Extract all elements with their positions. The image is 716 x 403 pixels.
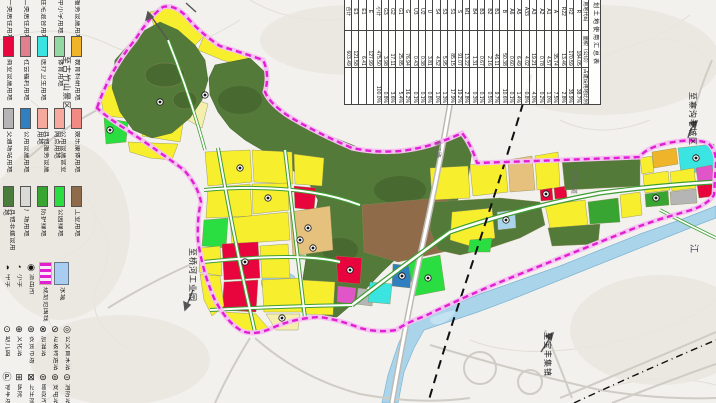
cell-code: E <box>366 0 373 30</box>
cell-code: R22 <box>559 0 566 30</box>
table-row: 非建设用地 E 127.99 <box>366 0 373 105</box>
legend-item: 娱乐康体用地 <box>70 108 83 177</box>
cell-percent <box>366 67 373 104</box>
cell-code: S4 <box>433 0 440 30</box>
legend-row-facilities-2: Ⓟ 停车场 ⊞ 医院 ⊠ 卫生院 ⊜ 邮政所 ⊚ 变电站 ⊝ 消防站 <box>2 372 72 403</box>
cell-percent: 0.8% <box>381 67 388 104</box>
cell-area: 50.38 <box>500 30 507 67</box>
water-swatch <box>54 262 69 285</box>
legend-swatch <box>71 36 82 57</box>
cell-area: 25.85 <box>396 30 403 67</box>
table-row: 商业服务业设施用地 B 50.38 10.6% <box>500 0 507 105</box>
boundary-swatch <box>39 262 52 285</box>
cell-area: 4.02 <box>522 30 529 67</box>
legend-item: 广场用地 <box>19 186 32 255</box>
cell-area: 3.81 <box>426 30 433 67</box>
cell-percent: 1.4% <box>514 67 521 104</box>
cell-area: 13.22 <box>463 30 470 67</box>
cell-percent: 4.0% <box>529 67 536 104</box>
legend-label: 农贸市场 <box>28 336 35 364</box>
parcels-cluster <box>640 144 716 207</box>
legend-label: 医疗卫生用地 <box>39 59 46 101</box>
cell-area: 1.31 <box>470 30 477 67</box>
table-row: E1 6.41 <box>359 0 366 105</box>
cell-code: B <box>500 0 507 30</box>
legend-water: 水域 <box>54 262 69 322</box>
legend-label: 公用设施用地 <box>22 131 29 173</box>
cell-area: 0.78 <box>537 30 544 67</box>
facility-icon: ⊞ <box>15 372 23 382</box>
legend-label: 水域 <box>58 287 65 301</box>
legend-label: 服务设施用地 <box>73 0 80 41</box>
table-row: A33 4.02 0.8% <box>522 0 529 105</box>
cell-area: 17.11 <box>389 30 396 67</box>
legend-swatch <box>37 36 48 57</box>
legend-item: 中小学用地 <box>53 0 66 41</box>
cell-code: E1 <box>359 0 366 30</box>
cell-code: R <box>574 0 581 30</box>
legend-label: 小学 <box>16 274 23 288</box>
legend-facility: ◉ 派出所 <box>26 262 36 322</box>
legend-facility: ⊙ 幼儿园 <box>2 324 12 371</box>
cell-percent: 0.1% <box>477 67 484 104</box>
table-row: B4 1.31 0.3% <box>470 0 477 105</box>
legend-item: 医疗卫生用地 <box>36 36 49 101</box>
cell-percent: 0.5% <box>485 67 492 104</box>
facility-icon: ⊕ <box>15 324 23 334</box>
cell-percent: 38.7% <box>574 67 581 104</box>
table-title: 规划土地使用汇总表 <box>589 0 601 105</box>
legend-item: 防护绿地 <box>36 186 49 255</box>
legend-label: 住宅混合用地 <box>39 0 46 41</box>
legend-label: 中学 <box>4 274 11 288</box>
legend-facility: ⊠ 卫生院 <box>26 372 36 403</box>
legend-label: 娱乐康体用地 <box>73 131 80 173</box>
cell-code: B2 <box>485 0 492 30</box>
legend-facility: ⊘ 垃圾转运站 <box>50 324 60 371</box>
cell-percent: 0.8% <box>426 67 433 104</box>
legend-item: 其他服务设施用地 <box>36 108 49 177</box>
cell-code: S <box>455 0 462 30</box>
legend-facility: ⊕ 文化站 <box>14 324 24 371</box>
legend-swatch <box>54 36 65 57</box>
legend-label: 邮政所 <box>40 384 47 403</box>
cell-percent: 1.0% <box>544 67 551 104</box>
landuse-summary-table: 规划土地使用汇总表 用地类别 用地代码 面积（公顷） 占建设用地比例（%） 居住… <box>344 0 601 105</box>
legend-swatch <box>54 186 65 207</box>
cell-code: R2 <box>566 0 573 30</box>
facility-icon: ⊘ <box>51 324 59 334</box>
cell-code: 小计 <box>374 0 381 30</box>
legend-swatch <box>37 108 48 129</box>
table-row: 总用地 合计 603.49 <box>344 0 351 105</box>
table-row: 绿地与广场用地 G 76.94 16.2% <box>403 0 410 105</box>
cell-area: 46.11 <box>492 30 499 67</box>
facility-icon: ◉ <box>27 262 35 272</box>
cell-code: U <box>426 0 433 30</box>
legend-swatch <box>20 36 31 57</box>
cell-area: 85.15 <box>448 30 455 67</box>
facility-icon: Ⓟ <box>2 372 11 382</box>
cell-area: 91.07 <box>455 30 462 67</box>
legend-item: 公用设施用地 <box>19 108 32 177</box>
legend-item: 其他非建设用地 <box>2 186 15 255</box>
legend-item: 一类居住用地 <box>2 0 15 41</box>
table-row: 公用设施用地 U 3.81 0.8% <box>426 0 433 105</box>
facility-icon: ⊙ <box>3 324 11 334</box>
facility-icon: ◑ <box>4 262 9 272</box>
cell-code: G3 <box>381 0 388 30</box>
legend-label: 防护绿地 <box>39 209 46 237</box>
cell-area: 6.49 <box>514 30 521 67</box>
table-row: U2 0.38 0.1% <box>418 0 425 105</box>
table-row: G2 17.11 3.6% <box>389 0 396 105</box>
legend-label: 加油站 <box>40 336 47 357</box>
legend-label: 医院 <box>16 384 23 398</box>
cell-area: 121.58 <box>352 30 359 67</box>
facility-icon: ⊗ <box>39 324 47 334</box>
legend-facility: ◑ 中学 <box>2 262 12 322</box>
facility-icon: ◎ <box>63 324 71 334</box>
cell-code: M1 <box>463 0 470 30</box>
legend-facility: ⊞ 医院 <box>14 372 24 403</box>
table-row: A3 19.21 4.0% <box>529 0 536 105</box>
cell-code: G <box>403 0 410 30</box>
legend-label: 交通场站用地 <box>5 131 12 173</box>
legend-facility: ⊛ 农贸市场 <box>26 324 36 371</box>
legend-swatch <box>37 186 48 207</box>
cell-percent: 7.5% <box>551 67 558 104</box>
legend-label: 停车场 <box>4 384 11 403</box>
legend-boundary: 规划范围线 <box>38 262 52 322</box>
legend-facility: ⊗ 加油站 <box>38 324 48 371</box>
legend-label: 卫生院 <box>28 384 35 403</box>
legend-label: 公用设施营业网点用地 <box>53 131 66 177</box>
cell-percent <box>344 67 351 104</box>
cell-percent: 1.3% <box>440 67 447 104</box>
legend-facility: ⊝ 消防站 <box>62 372 72 403</box>
cell-area: 603.49 <box>344 30 351 67</box>
cell-percent: 5.4% <box>396 67 403 104</box>
cell-area: 0.67 <box>477 30 484 67</box>
table-row: G1 25.85 5.4% <box>396 0 403 105</box>
legend-item: 教育科研用地 <box>70 36 83 101</box>
legend-facility: ⊚ 变电站 <box>50 372 60 403</box>
col-header: 用地代码 <box>581 0 588 30</box>
table-row: 道路与交通设施用地 S 91.07 19.2% <box>455 0 462 105</box>
cell-percent: 0.2% <box>537 67 544 104</box>
legend-label: 公园绿地 <box>56 209 63 237</box>
cell-area: 0.60 <box>507 30 514 67</box>
cell-code: S1 <box>448 0 455 30</box>
cell-code: U3 <box>411 0 418 30</box>
cell-code: B4 <box>470 0 477 30</box>
cell-percent: 0.3% <box>470 67 477 104</box>
legend-row-special: ◑ 中学 ◔ 小学 ◉ 派出所 规划范围线 水域 <box>2 262 69 322</box>
legend-swatch <box>54 108 65 129</box>
cell-percent <box>359 67 366 104</box>
legend-item: 交通场站用地 <box>2 108 15 177</box>
cell-area: 4.57 <box>544 30 551 67</box>
table-row: A5 6.49 1.4% <box>514 0 521 105</box>
cell-area: 3.98 <box>381 30 388 67</box>
cell-percent: 1.0% <box>433 67 440 104</box>
cell-percent: 9.7% <box>492 67 499 104</box>
legend: 一类居住用地 二类居住用地 住宅混合用地 中小学用地 服务设施用地 商业设施用地… <box>2 0 88 403</box>
legend-item: 服务设施用地 <box>70 0 83 41</box>
facility-icon: ⊜ <box>39 372 47 382</box>
legend-facility: ◎ 公交首末站 <box>62 324 72 371</box>
planning-map-sheet: 至古竹山景区至桥河工业园至寨沟老城区至宝丰集镇迎宾大道滨江路江 一类居住用地 二… <box>0 0 716 403</box>
legend-label: 文化站 <box>16 336 23 357</box>
table-row: B1 46.11 9.7% <box>492 0 499 105</box>
table-row: 工业用地 M1 13.22 2.8% <box>463 0 470 105</box>
legend-item: 二类居住用地 <box>19 0 32 41</box>
cell-code: A3 <box>529 0 536 30</box>
legend-facility: Ⓟ 停车场 <box>2 372 12 403</box>
legend-item: 社会福利用地 <box>19 36 32 101</box>
legend-facility: ⊜ 邮政所 <box>38 372 48 403</box>
legend-label: 工业用地 <box>73 209 80 237</box>
table-row: 建设用地 小计 475.50 100.0% <box>374 0 381 105</box>
cell-area: 19.21 <box>529 30 536 67</box>
cell-code: S3 <box>440 0 447 30</box>
legend-row-green: 其他非建设用地 广场用地 防护绿地 公园绿地 工业用地 <box>2 186 83 255</box>
table-row: A1 4.57 1.0% <box>544 0 551 105</box>
cell-percent: 10.6% <box>500 67 507 104</box>
legend-swatch <box>71 108 82 129</box>
legend-facility: ◔ 小学 <box>14 262 24 322</box>
facility-icon: ◔ <box>16 262 21 272</box>
table-header-row: 用地类别 用地代码 面积（公顷） 占建设用地比例（%） <box>581 0 588 105</box>
facility-icon: ⊝ <box>63 372 71 382</box>
cell-percent: 3.6% <box>389 67 396 104</box>
cell-area: 5.95 <box>440 30 447 67</box>
cell-code: A33 <box>522 0 529 30</box>
legend-label: 垃圾转运站 <box>52 336 59 371</box>
cell-code: A5 <box>514 0 521 30</box>
legend-row-residential: 一类居住用地 二类居住用地 住宅混合用地 中小学用地 服务设施用地 <box>2 0 83 41</box>
legend-label: 商业设施用地 <box>5 59 12 101</box>
cell-code: B3 <box>477 0 484 30</box>
cell-percent: 17.9% <box>448 67 455 104</box>
legend-label: 变电站 <box>52 384 59 403</box>
cell-percent: 0.8% <box>522 67 529 104</box>
legend-label: 派出所 <box>28 274 35 295</box>
table-row: E3 121.58 <box>352 0 359 105</box>
cell-percent: 16.2% <box>403 67 410 104</box>
legend-label: 中小学用地 <box>56 0 63 34</box>
cell-code: G1 <box>396 0 403 30</box>
cell-area: 76.94 <box>403 30 410 67</box>
legend-swatch <box>3 108 14 129</box>
legend-item: 公用设施营业网点用地 <box>53 108 66 177</box>
cell-percent: 2.8% <box>559 67 566 104</box>
cell-percent: 100.0% <box>374 67 381 104</box>
cell-area: 4.52 <box>433 30 440 67</box>
cell-code: B1 <box>492 0 499 30</box>
legend-label: 规划范围线 <box>42 287 49 322</box>
table-row: S1 85.15 17.9% <box>448 0 455 105</box>
table-row: A2 0.78 0.2% <box>537 0 544 105</box>
legend-row-facilities-1: ⊙ 幼儿园 ⊕ 文化站 ⊛ 农贸市场 ⊗ 加油站 ⊘ 垃圾转运站 ◎ 公交首末站 <box>2 324 72 371</box>
cell-percent: 0.1% <box>418 67 425 104</box>
cell-percent <box>352 67 359 104</box>
cell-area: 475.50 <box>374 30 381 67</box>
table-row: S4 4.52 1.0% <box>433 0 440 105</box>
facility-icon: ⊠ <box>27 372 35 382</box>
legend-label: 二类居住用地 <box>22 0 29 41</box>
table-row: B2 2.16 0.5% <box>485 0 492 105</box>
col-header: 占建设用地比例（%） <box>581 67 588 104</box>
table-row: R22 13.46 2.8% <box>559 0 566 105</box>
cell-percent: 0.1% <box>411 67 418 104</box>
facility-icon: ⊚ <box>51 372 59 382</box>
cell-code: A2 <box>537 0 544 30</box>
legend-label: 幼儿园 <box>4 336 11 357</box>
legend-row-utility: 交通场站用地 公用设施用地 其他服务设施用地 公用设施营业网点用地 娱乐康体用地 <box>2 108 83 177</box>
cell-code: U2 <box>418 0 425 30</box>
forest-texture <box>218 86 262 114</box>
legend-item: 商业设施用地 <box>2 36 15 101</box>
legend-label: 一类居住用地 <box>5 0 12 41</box>
legend-item: 工业用地 <box>70 186 83 255</box>
legend-swatch <box>20 108 31 129</box>
table-row: 居住用地 R 184.05 38.7% <box>574 0 581 105</box>
cell-code: G2 <box>389 0 396 30</box>
cell-code: E3 <box>352 0 359 30</box>
col-header: 面积（公顷） <box>581 30 588 67</box>
legend-label: 其他服务设施用地 <box>36 131 49 177</box>
legend-label: 其他非建设用地 <box>2 209 15 255</box>
facility-icon: ⊛ <box>27 324 35 334</box>
cell-area: 127.99 <box>366 30 373 67</box>
cell-area: 0.38 <box>418 30 425 67</box>
cell-percent: 35.9% <box>566 67 573 104</box>
legend-swatch <box>3 186 14 207</box>
table-row: G3 3.98 0.8% <box>381 0 388 105</box>
cell-percent: 19.2% <box>455 67 462 104</box>
legend-label: 体育用地 <box>56 59 63 87</box>
cell-area: 170.59 <box>566 30 573 67</box>
cell-area: 35.74 <box>551 30 558 67</box>
table-row: 公共管理与公共服务设施用地 A 35.74 7.5% <box>551 0 558 105</box>
table-row: S3 5.95 1.3% <box>440 0 447 105</box>
cell-percent: 0.1% <box>507 67 514 104</box>
legend-swatch <box>71 186 82 207</box>
legend-swatch <box>20 186 31 207</box>
cell-area: 13.46 <box>559 30 566 67</box>
table-row: B3 0.67 0.1% <box>477 0 484 105</box>
cell-area: 0.43 <box>411 30 418 67</box>
table-row: R2 170.59 35.9% <box>566 0 573 105</box>
legend-label: 教育科研用地 <box>73 59 80 101</box>
cell-code: 合计 <box>344 0 351 30</box>
cell-area: 6.41 <box>359 30 366 67</box>
legend-swatch <box>3 36 14 57</box>
cell-code: A6 <box>507 0 514 30</box>
legend-label: 消防站 <box>64 384 71 403</box>
cell-code: A <box>551 0 558 30</box>
table-row: U3 0.43 0.1% <box>411 0 418 105</box>
legend-item: 公园绿地 <box>53 186 66 255</box>
table-row: A6 0.60 0.1% <box>507 0 514 105</box>
legend-label: 社会福利用地 <box>22 59 29 101</box>
cell-area: 184.05 <box>574 30 581 67</box>
cell-code: A1 <box>544 0 551 30</box>
legend-item: 住宅混合用地 <box>36 0 49 41</box>
legend-item: 体育用地 <box>53 36 66 101</box>
legend-label: 广场用地 <box>22 209 29 237</box>
legend-label: 公交首末站 <box>64 336 71 371</box>
cell-area: 2.16 <box>485 30 492 67</box>
cell-percent: 2.8% <box>463 67 470 104</box>
legend-row-public: 商业设施用地 社会福利用地 医疗卫生用地 体育用地 教育科研用地 <box>2 36 83 101</box>
